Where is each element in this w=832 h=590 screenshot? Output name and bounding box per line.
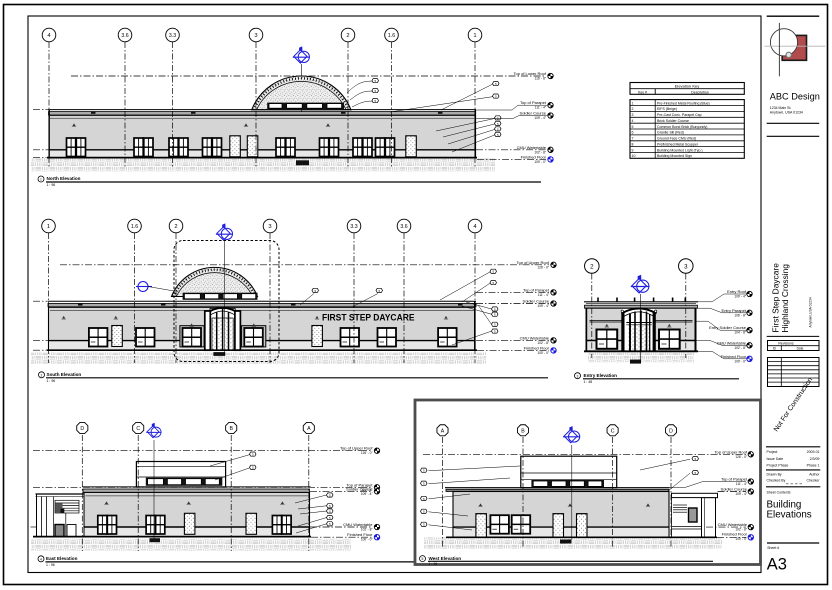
svg-text:Top of Upper Roof: Top of Upper Roof bbox=[517, 260, 550, 265]
svg-text:Drawn By: Drawn By bbox=[767, 473, 782, 477]
svg-text:Elevation Key: Elevation Key bbox=[675, 83, 699, 88]
svg-text:5: 5 bbox=[632, 125, 634, 129]
svg-text:100' - 0": 100' - 0" bbox=[534, 160, 546, 164]
svg-text:Sheet #: Sheet # bbox=[767, 546, 779, 550]
svg-text:1: 1 bbox=[47, 224, 50, 230]
svg-text:Project: Project bbox=[767, 450, 778, 454]
svg-text:5: 5 bbox=[422, 557, 424, 561]
svg-text:2009-01: 2009-01 bbox=[807, 450, 820, 454]
svg-text:109' - 4": 109' - 4" bbox=[734, 295, 746, 299]
svg-text:2: 2 bbox=[346, 33, 349, 39]
svg-text:102' - 8": 102' - 8" bbox=[537, 341, 549, 345]
svg-text:CMU Watertable: CMU Watertable bbox=[520, 335, 550, 340]
svg-text:10: 10 bbox=[632, 154, 636, 158]
svg-text:Building Mounted Light (Typ.): Building Mounted Light (Typ.) bbox=[657, 148, 703, 152]
svg-text:1 : 96: 1 : 96 bbox=[47, 379, 56, 383]
svg-text:3: 3 bbox=[684, 263, 688, 270]
svg-text:EIFS (Beige): EIFS (Beige) bbox=[657, 107, 677, 111]
svg-text:111' - 4": 111' - 4" bbox=[535, 106, 546, 110]
svg-text:2: 2 bbox=[41, 373, 43, 377]
svg-text:CMU Watertable: CMU Watertable bbox=[717, 340, 747, 345]
svg-text:Phase 1: Phase 1 bbox=[807, 463, 820, 467]
svg-text:FIRST STEP DAYCARE: FIRST STEP DAYCARE bbox=[322, 313, 415, 323]
svg-text:B: B bbox=[521, 428, 525, 434]
svg-text:A: A bbox=[441, 428, 445, 434]
svg-text:3: 3 bbox=[632, 113, 634, 117]
svg-text:8: 8 bbox=[632, 143, 634, 147]
svg-text:D: D bbox=[80, 426, 84, 432]
svg-text:Top of Parapet: Top of Parapet bbox=[523, 287, 550, 292]
svg-text:Author: Author bbox=[809, 473, 820, 477]
svg-text:126' - 0": 126' - 0" bbox=[361, 451, 373, 455]
svg-text:ABC Design: ABC Design bbox=[770, 92, 820, 102]
svg-text:7: 7 bbox=[632, 137, 634, 141]
svg-text:3.3: 3.3 bbox=[169, 33, 176, 39]
svg-text:Highland Crossing: Highland Crossing bbox=[780, 264, 790, 333]
svg-text:North Elevation: North Elevation bbox=[47, 176, 81, 181]
svg-text:Brick Soldier Course: Brick Soldier Course bbox=[657, 119, 689, 123]
svg-text:Soldier Course: Soldier Course bbox=[520, 111, 547, 116]
svg-text:Prefinished Metal Scupper: Prefinished Metal Scupper bbox=[657, 143, 699, 147]
svg-text:Finished Floor: Finished Floor bbox=[521, 154, 547, 159]
svg-text:Key #: Key # bbox=[638, 90, 647, 94]
svg-text:D: D bbox=[669, 428, 673, 434]
svg-text:6: 6 bbox=[632, 131, 634, 135]
svg-text:2/3/09: 2/3/09 bbox=[810, 457, 820, 461]
svg-text:111' - 4": 111' - 4" bbox=[736, 482, 747, 486]
svg-text:CMU Watertable: CMU Watertable bbox=[718, 522, 748, 527]
svg-text:South Elevation: South Elevation bbox=[47, 372, 82, 377]
svg-text:Entry Soldier Course: Entry Soldier Course bbox=[709, 325, 747, 330]
svg-text:Sheet Contents: Sheet Contents bbox=[767, 490, 791, 494]
svg-text:Top of Upper Roof: Top of Upper Roof bbox=[715, 449, 748, 454]
svg-text:1234 Main St.: 1234 Main St. bbox=[770, 106, 792, 110]
svg-text:Revisions: Revisions bbox=[778, 342, 793, 346]
svg-text:Pre-Finished Metal Roofing (Bl: Pre-Finished Metal Roofing (Blue) bbox=[657, 101, 710, 105]
svg-text:Anytown, USA 01234: Anytown, USA 01234 bbox=[770, 110, 803, 114]
svg-text:A3: A3 bbox=[767, 556, 787, 574]
svg-text:111' - 4": 111' - 4" bbox=[538, 293, 549, 297]
svg-text:Soldier Course: Soldier Course bbox=[346, 486, 373, 491]
svg-text:126' - 0": 126' - 0" bbox=[537, 265, 549, 269]
svg-text:Finished Floor: Finished Floor bbox=[524, 345, 550, 350]
svg-text:Elevations: Elevations bbox=[767, 509, 812, 520]
svg-text:109' - 4": 109' - 4" bbox=[534, 116, 546, 120]
svg-text:Date: Date bbox=[797, 347, 804, 351]
svg-text:Finished Floor: Finished Floor bbox=[721, 354, 747, 359]
svg-text:Top of Parapet: Top of Parapet bbox=[721, 477, 748, 482]
svg-text:3: 3 bbox=[577, 374, 579, 378]
svg-text:Building Mounted Sign: Building Mounted Sign bbox=[657, 154, 692, 158]
svg-text:A: A bbox=[307, 426, 311, 432]
svg-text:First Step Daycare: First Step Daycare bbox=[771, 263, 781, 333]
svg-text:Granite Sill (Red): Granite Sill (Red) bbox=[657, 131, 684, 135]
svg-text:1.6: 1.6 bbox=[388, 33, 395, 39]
svg-text:1.6: 1.6 bbox=[131, 224, 138, 230]
svg-text:Issue Date: Issue Date bbox=[767, 457, 784, 461]
svg-text:1: 1 bbox=[632, 101, 634, 105]
svg-text:106' - 8": 106' - 8" bbox=[734, 313, 746, 317]
svg-text:2: 2 bbox=[174, 224, 177, 230]
svg-text:Top of Lower Roof: Top of Lower Roof bbox=[514, 71, 547, 76]
svg-text:Finished Floor: Finished Floor bbox=[347, 532, 373, 537]
svg-text:1 : 48: 1 : 48 bbox=[584, 380, 593, 384]
svg-text:1: 1 bbox=[473, 33, 476, 39]
svg-text:CMU Watertable: CMU Watertable bbox=[517, 145, 547, 150]
svg-text:1 : 96: 1 : 96 bbox=[46, 563, 55, 567]
svg-text:109' - 4": 109' - 4" bbox=[361, 492, 373, 496]
svg-text:116' - 8": 116' - 8" bbox=[535, 77, 546, 81]
svg-text:C: C bbox=[136, 426, 140, 432]
svg-text:Soldier Course: Soldier Course bbox=[721, 487, 748, 492]
svg-text:Ground Face CMU (Red): Ground Face CMU (Red) bbox=[657, 137, 696, 141]
svg-text:C: C bbox=[611, 428, 615, 434]
svg-text:B: B bbox=[229, 426, 233, 432]
svg-text:2: 2 bbox=[632, 107, 634, 111]
svg-text:1 : 96: 1 : 96 bbox=[47, 183, 56, 187]
svg-text:109' - 4": 109' - 4" bbox=[537, 304, 549, 308]
svg-text:Top of Parapet: Top of Parapet bbox=[520, 100, 547, 105]
svg-text:3.6: 3.6 bbox=[400, 224, 407, 230]
svg-text:102' - 8": 102' - 8" bbox=[361, 528, 373, 532]
svg-text:Checker: Checker bbox=[806, 478, 820, 482]
svg-text:9: 9 bbox=[632, 148, 634, 152]
svg-text:2: 2 bbox=[590, 263, 594, 270]
svg-text:4: 4 bbox=[632, 119, 634, 123]
svg-text:East Elevation: East Elevation bbox=[46, 556, 78, 561]
svg-text:126' - 0": 126' - 0" bbox=[735, 455, 747, 459]
svg-text:West Elevation: West Elevation bbox=[429, 556, 462, 561]
svg-text:CMU Watertable: CMU Watertable bbox=[343, 522, 373, 527]
svg-text:Description: Description bbox=[691, 90, 709, 94]
svg-text:Entry Roof: Entry Roof bbox=[727, 289, 747, 294]
svg-text:Top of Upper Roof: Top of Upper Roof bbox=[340, 446, 373, 451]
svg-text:Anytown,USA 01234: Anytown,USA 01234 bbox=[809, 297, 813, 327]
svg-text:Finished Floor: Finished Floor bbox=[722, 532, 748, 537]
svg-text:Pre-Cast Conc. Parapet Cap: Pre-Cast Conc. Parapet Cap bbox=[657, 113, 702, 117]
svg-text:100' - 0": 100' - 0" bbox=[537, 351, 549, 355]
svg-text:100' - 0": 100' - 0" bbox=[735, 537, 747, 541]
svg-text:3.6: 3.6 bbox=[121, 33, 128, 39]
svg-text:104' - 8": 104' - 8" bbox=[734, 331, 746, 335]
svg-text:Checked By: Checked By bbox=[767, 478, 786, 482]
svg-text:109' - 4": 109' - 4" bbox=[735, 492, 747, 496]
svg-text:102' - 8": 102' - 8" bbox=[734, 346, 746, 350]
svg-text:3: 3 bbox=[254, 33, 257, 39]
svg-text:1: 1 bbox=[40, 178, 42, 182]
svg-text:4: 4 bbox=[40, 557, 42, 561]
svg-text:Soldier Course: Soldier Course bbox=[523, 299, 550, 304]
svg-text:Entry Elevation: Entry Elevation bbox=[584, 373, 618, 378]
svg-text:Common Bond Brick (Burgundy): Common Bond Brick (Burgundy) bbox=[657, 125, 707, 129]
svg-text:1 : 96: 1 : 96 bbox=[429, 562, 438, 566]
svg-text:3: 3 bbox=[268, 224, 271, 230]
svg-text:Project Phase: Project Phase bbox=[767, 463, 789, 467]
svg-text:100' - 0": 100' - 0" bbox=[734, 359, 746, 363]
svg-text:100' - 0": 100' - 0" bbox=[361, 538, 373, 542]
svg-text:3.3: 3.3 bbox=[350, 224, 357, 230]
svg-text:Entry Parapet: Entry Parapet bbox=[722, 308, 747, 313]
